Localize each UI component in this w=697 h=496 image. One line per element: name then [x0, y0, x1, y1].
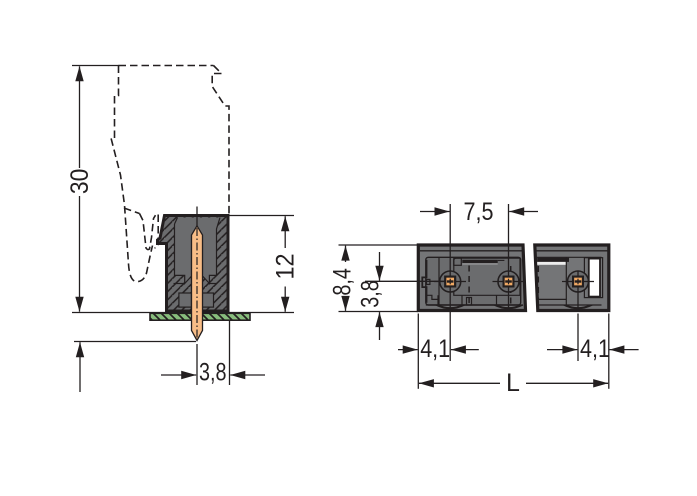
svg-text:8,4: 8,4 [329, 268, 357, 296]
svg-text:3,8: 3,8 [199, 359, 227, 387]
svg-text:4,1: 4,1 [420, 335, 450, 363]
svg-text:3,8: 3,8 [357, 280, 385, 308]
svg-text:30: 30 [66, 169, 94, 195]
svg-text:7,5: 7,5 [464, 198, 494, 226]
svg-text:L: L [506, 369, 520, 397]
svg-text:4,1: 4,1 [580, 335, 610, 363]
svg-text:12: 12 [272, 254, 300, 280]
